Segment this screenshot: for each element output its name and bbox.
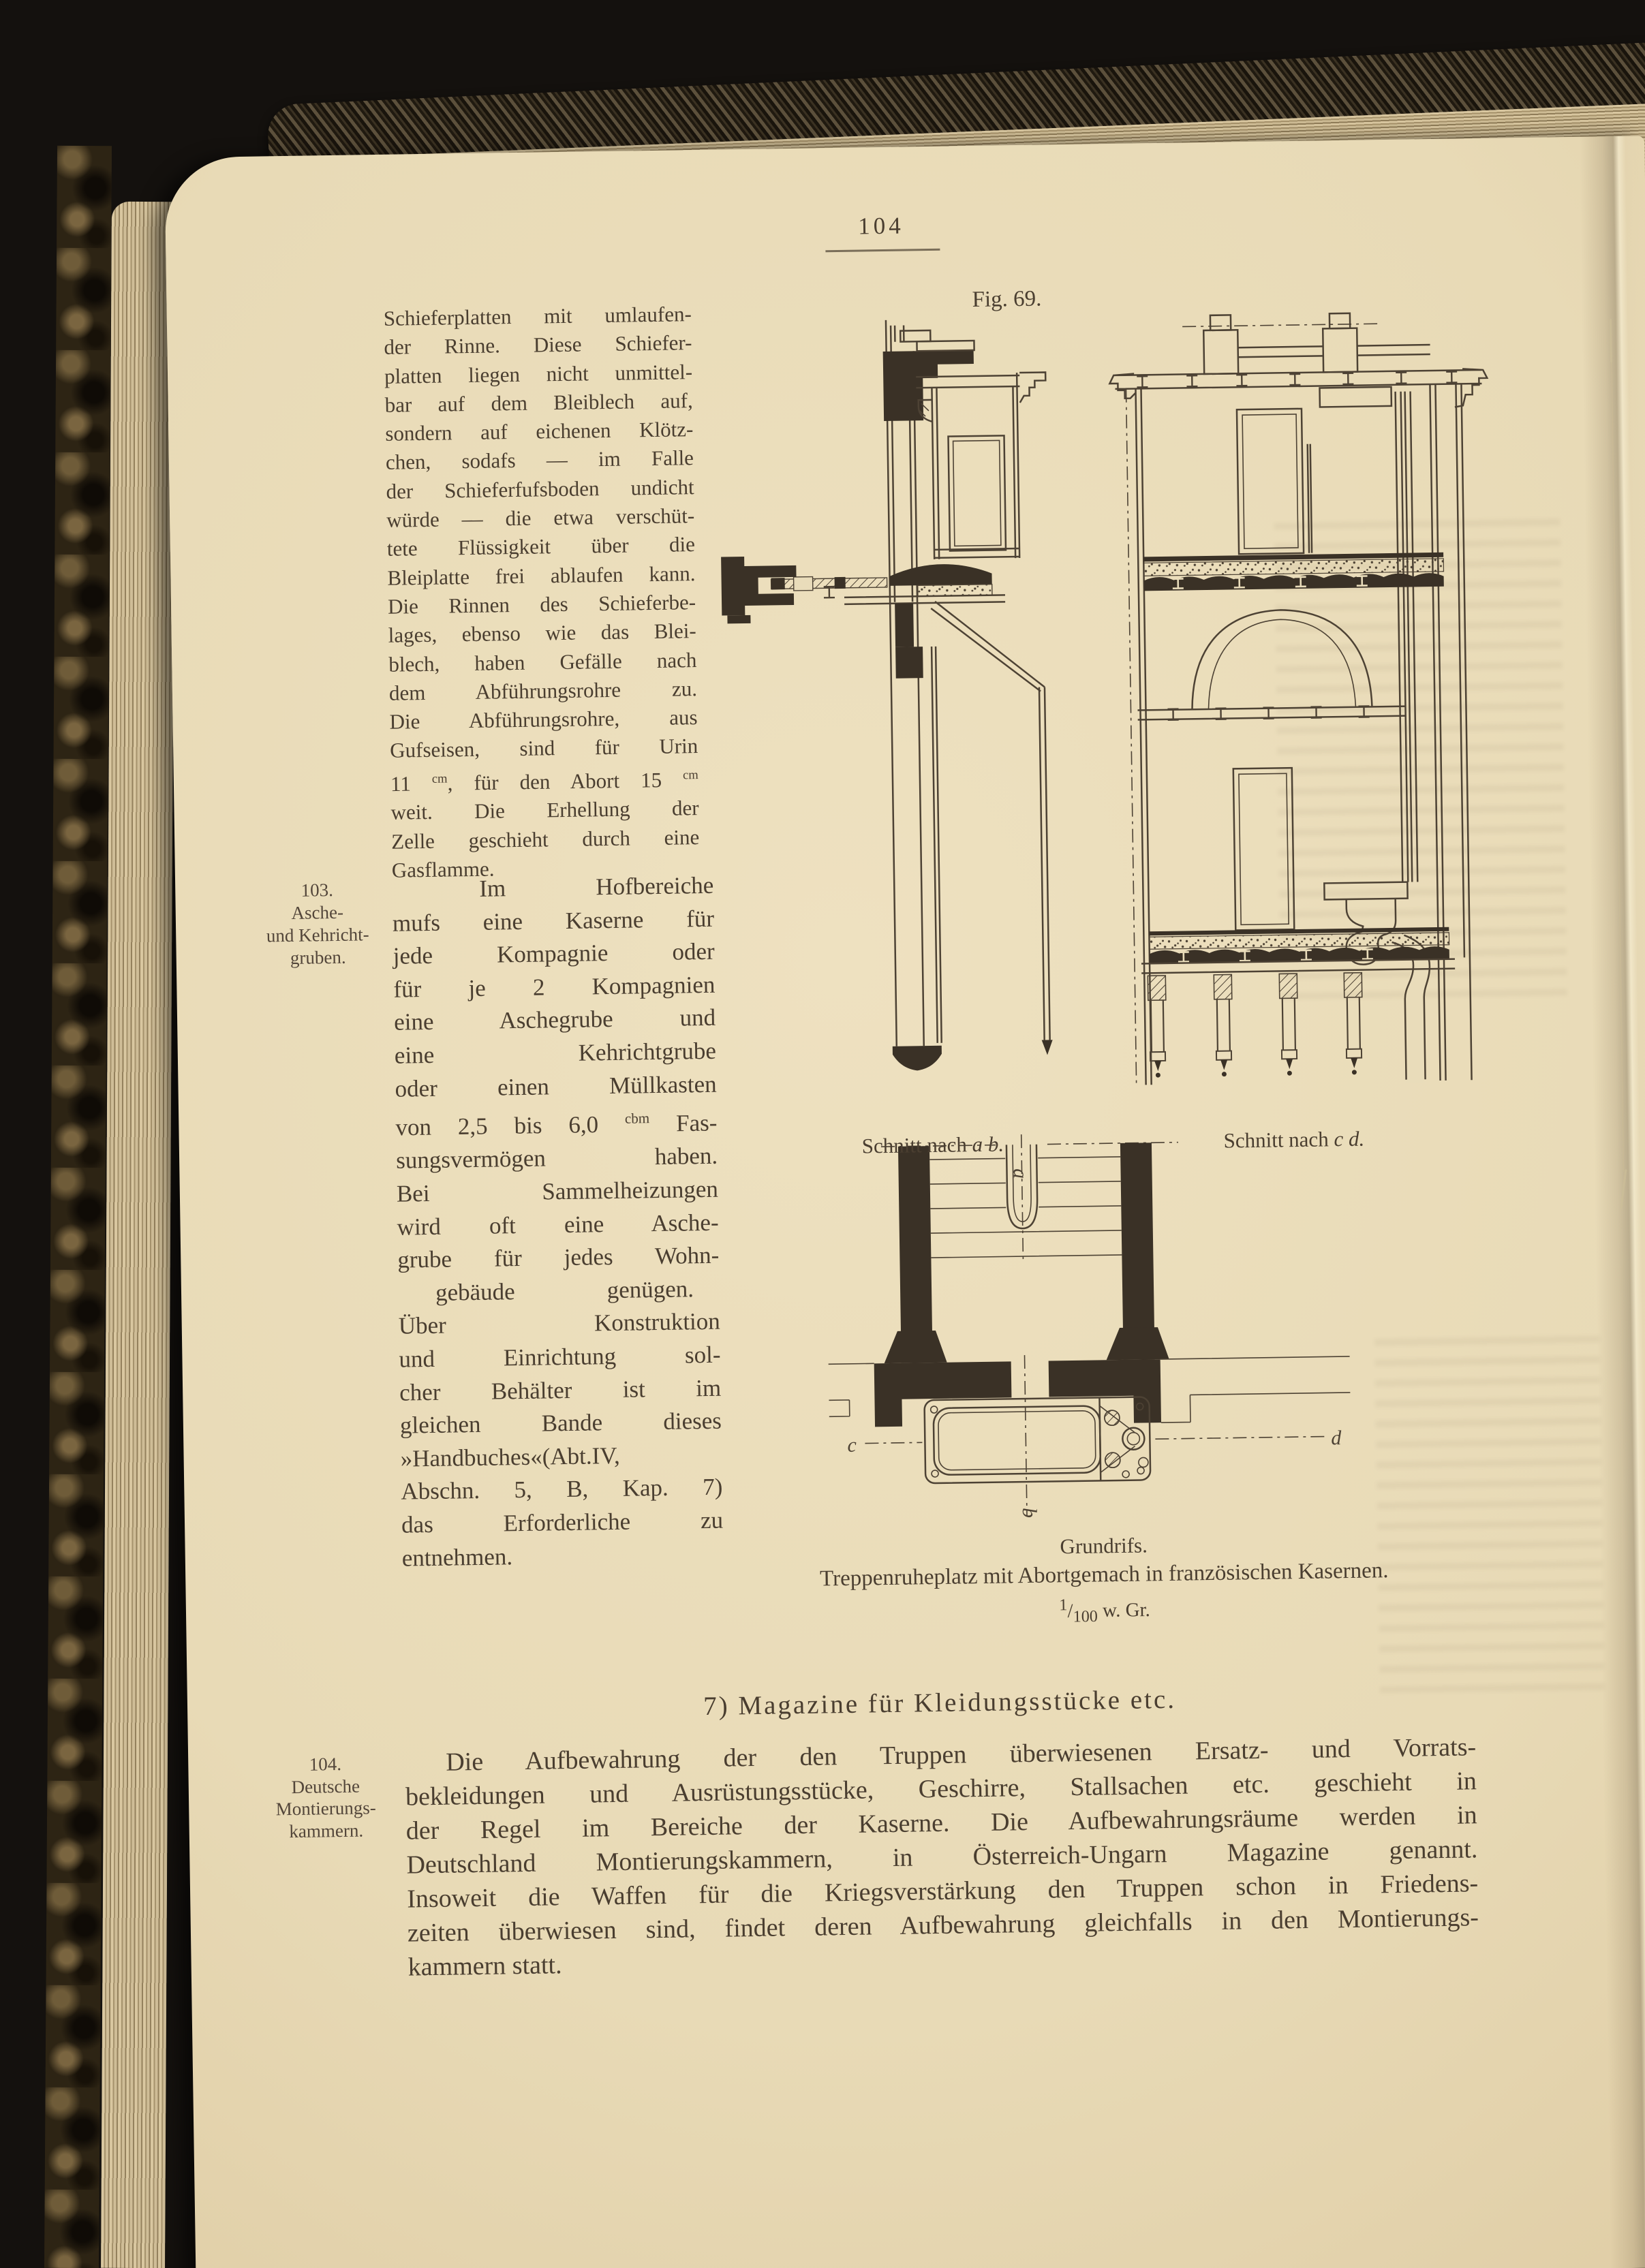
text-line: entnehmen. — [401, 1537, 724, 1575]
figure-69-drawing: a b c d — [697, 302, 1507, 1621]
page-stack-left-edges — [101, 202, 176, 2268]
text-line: cher Behälter ist im — [399, 1371, 722, 1410]
text-line: und Einrichtung sol- — [399, 1339, 721, 1377]
text-line: sungsvermögen haben. — [396, 1140, 718, 1178]
text-line: dem Abführungsrohre zu. — [389, 674, 698, 708]
right-section-drawing — [1109, 311, 1498, 1087]
text-line: wird oft eine Asche- — [397, 1206, 719, 1244]
text-line: grube für jedes Wohn- — [397, 1239, 720, 1277]
text-line: Über Konstruktion — [398, 1305, 720, 1343]
text-line: tete Flüssigkeit über die — [387, 530, 696, 563]
text-line: von 2,5 bis 6,0 cbm Fas- — [395, 1101, 718, 1145]
text-line: Zelle geschieht durch eine — [391, 823, 700, 856]
caption-scale: 1/100 w. Gr. — [1036, 1594, 1173, 1627]
page-number: 104 — [820, 212, 943, 241]
text-line: Abschn. 5, B, Kap. 7) — [401, 1471, 723, 1509]
text-line: gleichen Bande dieses — [400, 1405, 722, 1443]
text-line: Gufseisen, sind für Urin — [390, 732, 698, 766]
text-line: Bleiplatte frei ablaufen kann. — [387, 559, 696, 593]
text-line: bar auf dem Bleiblech auf, — [384, 386, 693, 420]
text-line: »Handbuches«(Abt.IV, — [400, 1438, 722, 1476]
text-line: gruben. — [250, 946, 386, 970]
text-line: der Rinne. Diese Schiefer- — [384, 328, 692, 362]
text-line: gebäude genügen. — [398, 1272, 720, 1310]
text-line: Montierungs- — [253, 1797, 398, 1821]
text-line: eine Kehrichtgrube — [395, 1035, 717, 1073]
text-line: mufs eine Kaserne für — [393, 902, 715, 940]
text-line: sondern auf eichenen Klötz- — [385, 415, 694, 448]
plan-drawing: a b c d — [825, 1130, 1352, 1521]
text-line: der Schieferfufsboden undicht — [386, 473, 694, 506]
text-line: 104. — [253, 1752, 397, 1777]
book-page: 104 Fig. 69. Schieferplatten mit umlaufe… — [164, 136, 1645, 2268]
text-line: Die Rinnen des Schieferbe- — [388, 588, 696, 621]
book-cover-spine — [44, 146, 112, 2268]
text-line: und Kehricht- — [249, 923, 386, 948]
plan-label-c: c — [847, 1434, 857, 1457]
column-paragraph-hofbereich: Im Hofbereichemufs eine Kaserne fürjede … — [392, 869, 724, 1575]
text-line: chen, sodafs — im Falle — [386, 444, 694, 478]
text-line: das Erforderliche zu — [401, 1504, 724, 1542]
text-line: jede Kompagnie oder — [393, 935, 715, 974]
text-line: oder einen Müllkasten — [395, 1068, 717, 1106]
text-line: würde –– die etwa verschüt- — [386, 501, 695, 535]
caption-section-cd: Schnitt nach c d. — [1205, 1126, 1383, 1153]
plan-label-d: d — [1331, 1427, 1342, 1449]
left-section-drawing — [718, 317, 1056, 1073]
plan-label-a: a — [1009, 1168, 1031, 1179]
text-line: Die Abführungsrohre, aus — [389, 703, 698, 736]
text-line: für je 2 Kompagnien — [393, 969, 716, 1007]
text-line: eine Aschegrube und — [394, 1001, 716, 1040]
text-line: 103. — [249, 878, 385, 903]
text-line: Im Hofbereiche — [392, 869, 714, 907]
column-paragraph-continuation: Schieferplatten mit umlaufen-der Rinne. … — [384, 300, 701, 885]
text-line: Asche- — [249, 901, 386, 925]
text-line: 11 cm, für den Abort 15 cm — [390, 761, 699, 798]
text-line: kammern. — [254, 1818, 399, 1843]
margin-note-104: 104.DeutscheMontierungs-kammern. — [253, 1752, 399, 1843]
text-line: Schieferplatten mit umlaufen- — [384, 300, 692, 333]
text-line: weit. Die Erhellung der — [390, 794, 699, 827]
margin-note-103: 103.Asche-und Kehricht-gruben. — [249, 878, 386, 970]
text-line: lages, ebenso wie das Blei- — [388, 617, 696, 650]
text-line: blech, haben Gefälle nach — [388, 646, 697, 679]
section-heading: 7) Magazine für Kleidungsstücke etc. — [404, 1679, 1475, 1726]
caption-section-ab: Schnitt nach a b. — [844, 1132, 1022, 1159]
text-line: Bei Sammelheizungen — [397, 1173, 719, 1211]
plan-label-b: b — [1018, 1508, 1041, 1518]
section-paragraph: Die Aufbewahrung der den Truppen überwie… — [405, 1730, 1479, 1984]
book-scan: 104 Fig. 69. Schieferplatten mit umlaufe… — [0, 0, 1645, 2268]
text-line: platten liegen nicht unmittel- — [384, 358, 693, 391]
page-number-rule — [825, 249, 940, 252]
text-line: Deutsche — [253, 1774, 398, 1799]
caption-plan: Grundrifs. — [1035, 1533, 1172, 1559]
